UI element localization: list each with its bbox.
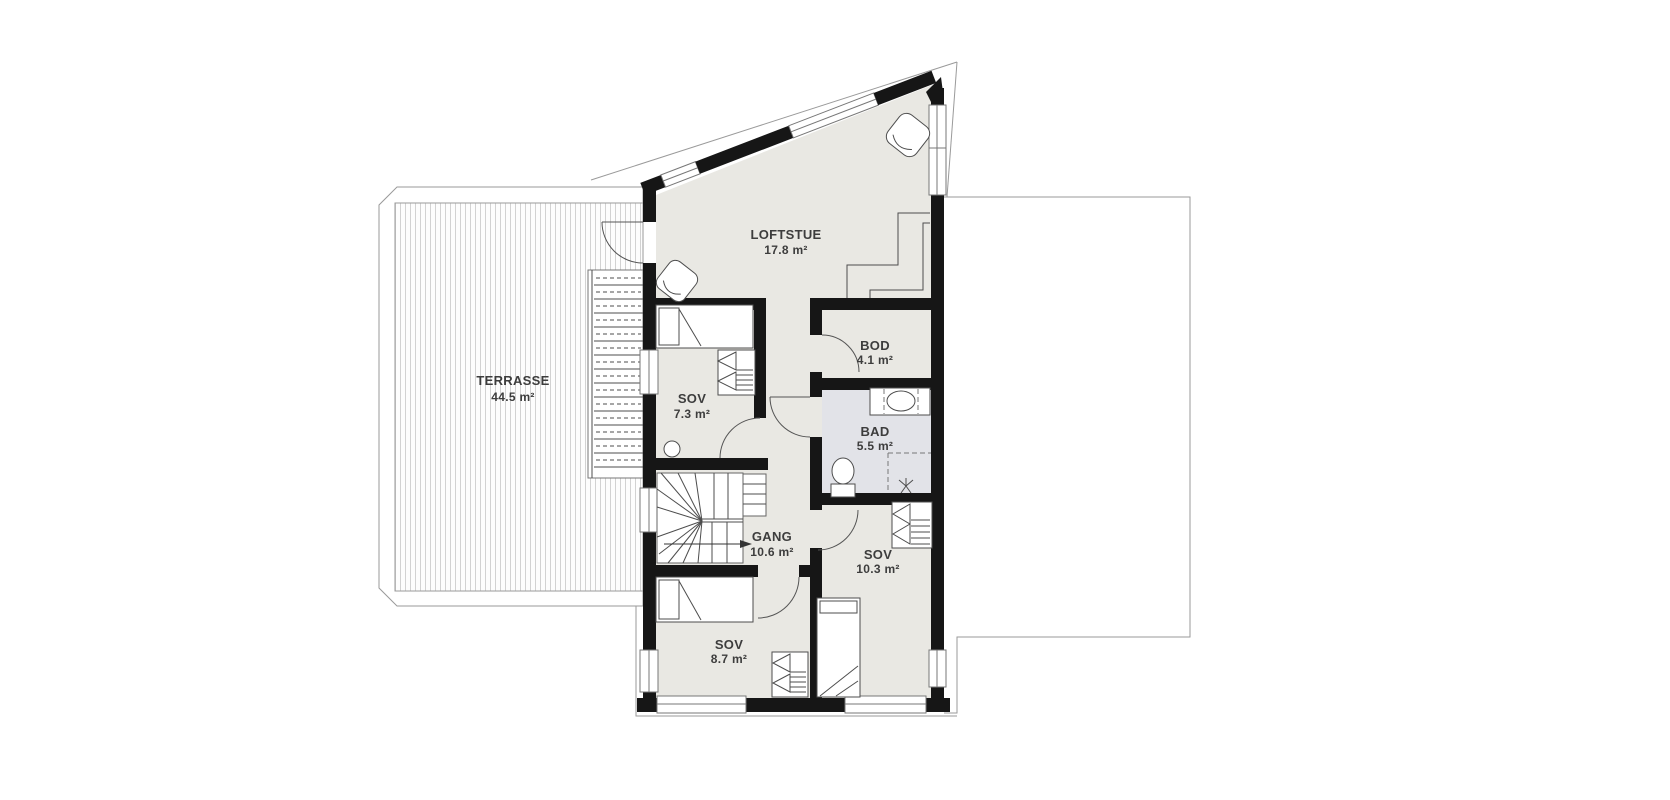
vanity-sink-symbol xyxy=(870,388,930,415)
svg-text:5.5 m²: 5.5 m² xyxy=(857,439,893,453)
wardrobe-symbol xyxy=(718,350,755,395)
svg-text:7.3 m²: 7.3 m² xyxy=(674,407,710,421)
terrace-stair-symbol xyxy=(588,270,643,478)
svg-text:10.6 m²: 10.6 m² xyxy=(750,545,793,559)
svg-text:TERRASSE: TERRASSE xyxy=(476,373,549,388)
wardrobe-symbol xyxy=(772,652,808,697)
svg-text:LOFTSTUE: LOFTSTUE xyxy=(750,227,821,242)
svg-text:SOV: SOV xyxy=(715,637,743,652)
window-symbol xyxy=(657,696,746,713)
floor-plan: TERRASSE 44.5 m² LOFTSTUE 17.8 m² SOV 7.… xyxy=(0,0,1670,800)
room-label-bod: BOD 4.1 m² xyxy=(857,338,893,367)
svg-text:44.5 m²: 44.5 m² xyxy=(491,390,534,404)
svg-text:SOV: SOV xyxy=(864,547,892,562)
svg-text:4.1 m²: 4.1 m² xyxy=(857,353,893,367)
svg-text:SOV: SOV xyxy=(678,391,706,406)
window-symbol xyxy=(929,105,946,195)
bed-symbol xyxy=(656,305,753,348)
toilet-symbol xyxy=(831,458,855,497)
svg-text:GANG: GANG xyxy=(752,529,792,544)
bed-symbol xyxy=(817,598,860,697)
window-symbol xyxy=(929,650,946,687)
floor-plan-canvas: TERRASSE 44.5 m² LOFTSTUE 17.8 m² SOV 7.… xyxy=(0,0,1670,800)
room-label-sov3: SOV 8.7 m² xyxy=(711,637,747,666)
svg-text:17.8 m²: 17.8 m² xyxy=(764,243,807,257)
bed-symbol xyxy=(656,577,753,622)
room-label-bad: BAD 5.5 m² xyxy=(857,424,893,453)
stool-symbol xyxy=(664,441,680,457)
svg-text:BOD: BOD xyxy=(860,338,890,353)
svg-text:8.7 m²: 8.7 m² xyxy=(711,652,747,666)
window-symbol xyxy=(640,650,658,692)
svg-text:BAD: BAD xyxy=(860,424,889,439)
lower-roof-outline xyxy=(944,197,1190,713)
window-symbol xyxy=(845,696,926,713)
window-symbol xyxy=(640,350,658,394)
svg-text:10.3 m²: 10.3 m² xyxy=(856,562,899,576)
wardrobe-symbol xyxy=(892,502,932,548)
window-symbol xyxy=(640,488,658,532)
